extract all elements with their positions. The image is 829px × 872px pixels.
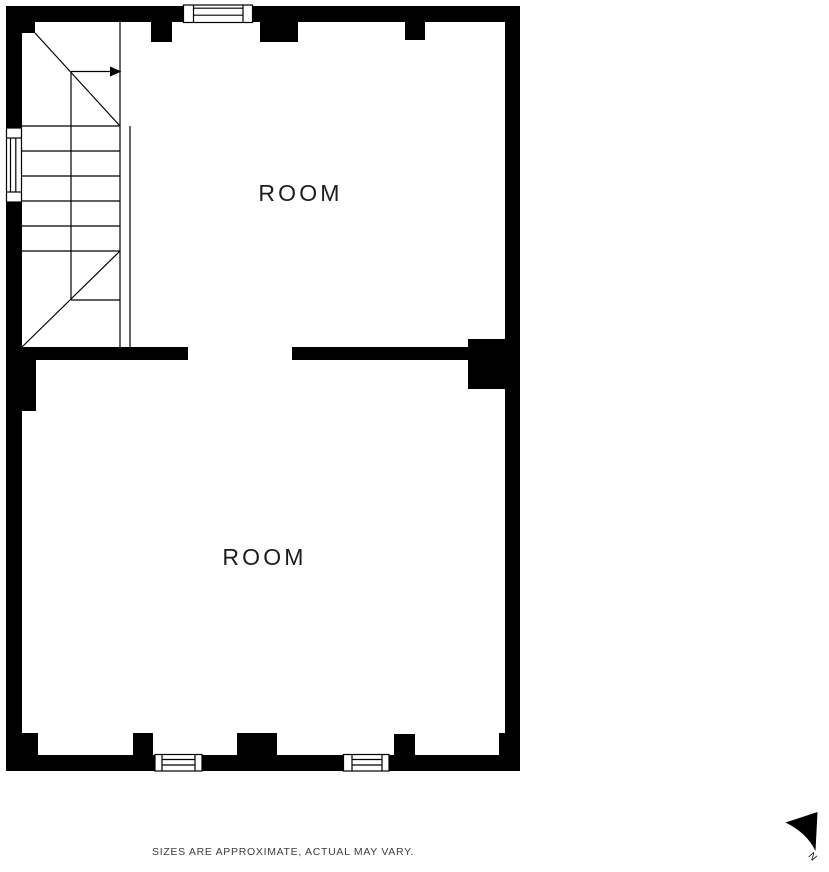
room-label-lower: ROOM: [194, 544, 335, 571]
window-bottom-1: [155, 755, 202, 772]
wall-pier-bottom-4: [394, 734, 415, 755]
wall-pier-bottom-2: [133, 733, 153, 755]
wall-left-lower-segment: [6, 202, 22, 755]
wall-pier-top-1: [151, 22, 172, 42]
wall-left-upper-segment: [6, 6, 22, 128]
staircase: [22, 22, 130, 347]
wall-pier-left: [6, 360, 36, 411]
window-bottom-2: [344, 755, 390, 772]
interior-wall-right-segment: [292, 347, 468, 360]
wall-pier-bottom-1: [15, 733, 38, 755]
wall-right-bottom-step: [499, 733, 505, 771]
north-arrow-needle: [786, 812, 818, 851]
window-left: [7, 128, 22, 202]
windows: [7, 5, 390, 771]
room-label-upper: ROOM: [230, 180, 371, 207]
window-top: [184, 5, 253, 23]
wall-top-right-segment: [253, 6, 520, 22]
perimeter-walls: [6, 6, 520, 771]
north-arrow: [786, 812, 818, 851]
wall-bottom-segment-1: [6, 755, 155, 771]
stair-break-line-upper: [35, 33, 120, 126]
interior-wall: [22, 339, 520, 389]
disclaimer-text: SIZES ARE APPROXIMATE, ACTUAL MAY VARY.: [152, 846, 414, 858]
interior-wall-pier-block: [468, 339, 520, 389]
stair-direction-arrow: [71, 67, 122, 77]
interior-wall-left-segment: [22, 347, 188, 360]
wall-pier-top-3: [405, 22, 425, 40]
floor-plan: ROOM ROOM SIZES ARE APPROXIMATE, ACTUAL …: [0, 0, 829, 872]
floor-plan-drawing: [0, 0, 829, 872]
wall-pier-bottom-3: [237, 733, 277, 755]
wall-bottom-segment-2: [202, 755, 343, 771]
wall-pier-top-2: [260, 22, 298, 42]
